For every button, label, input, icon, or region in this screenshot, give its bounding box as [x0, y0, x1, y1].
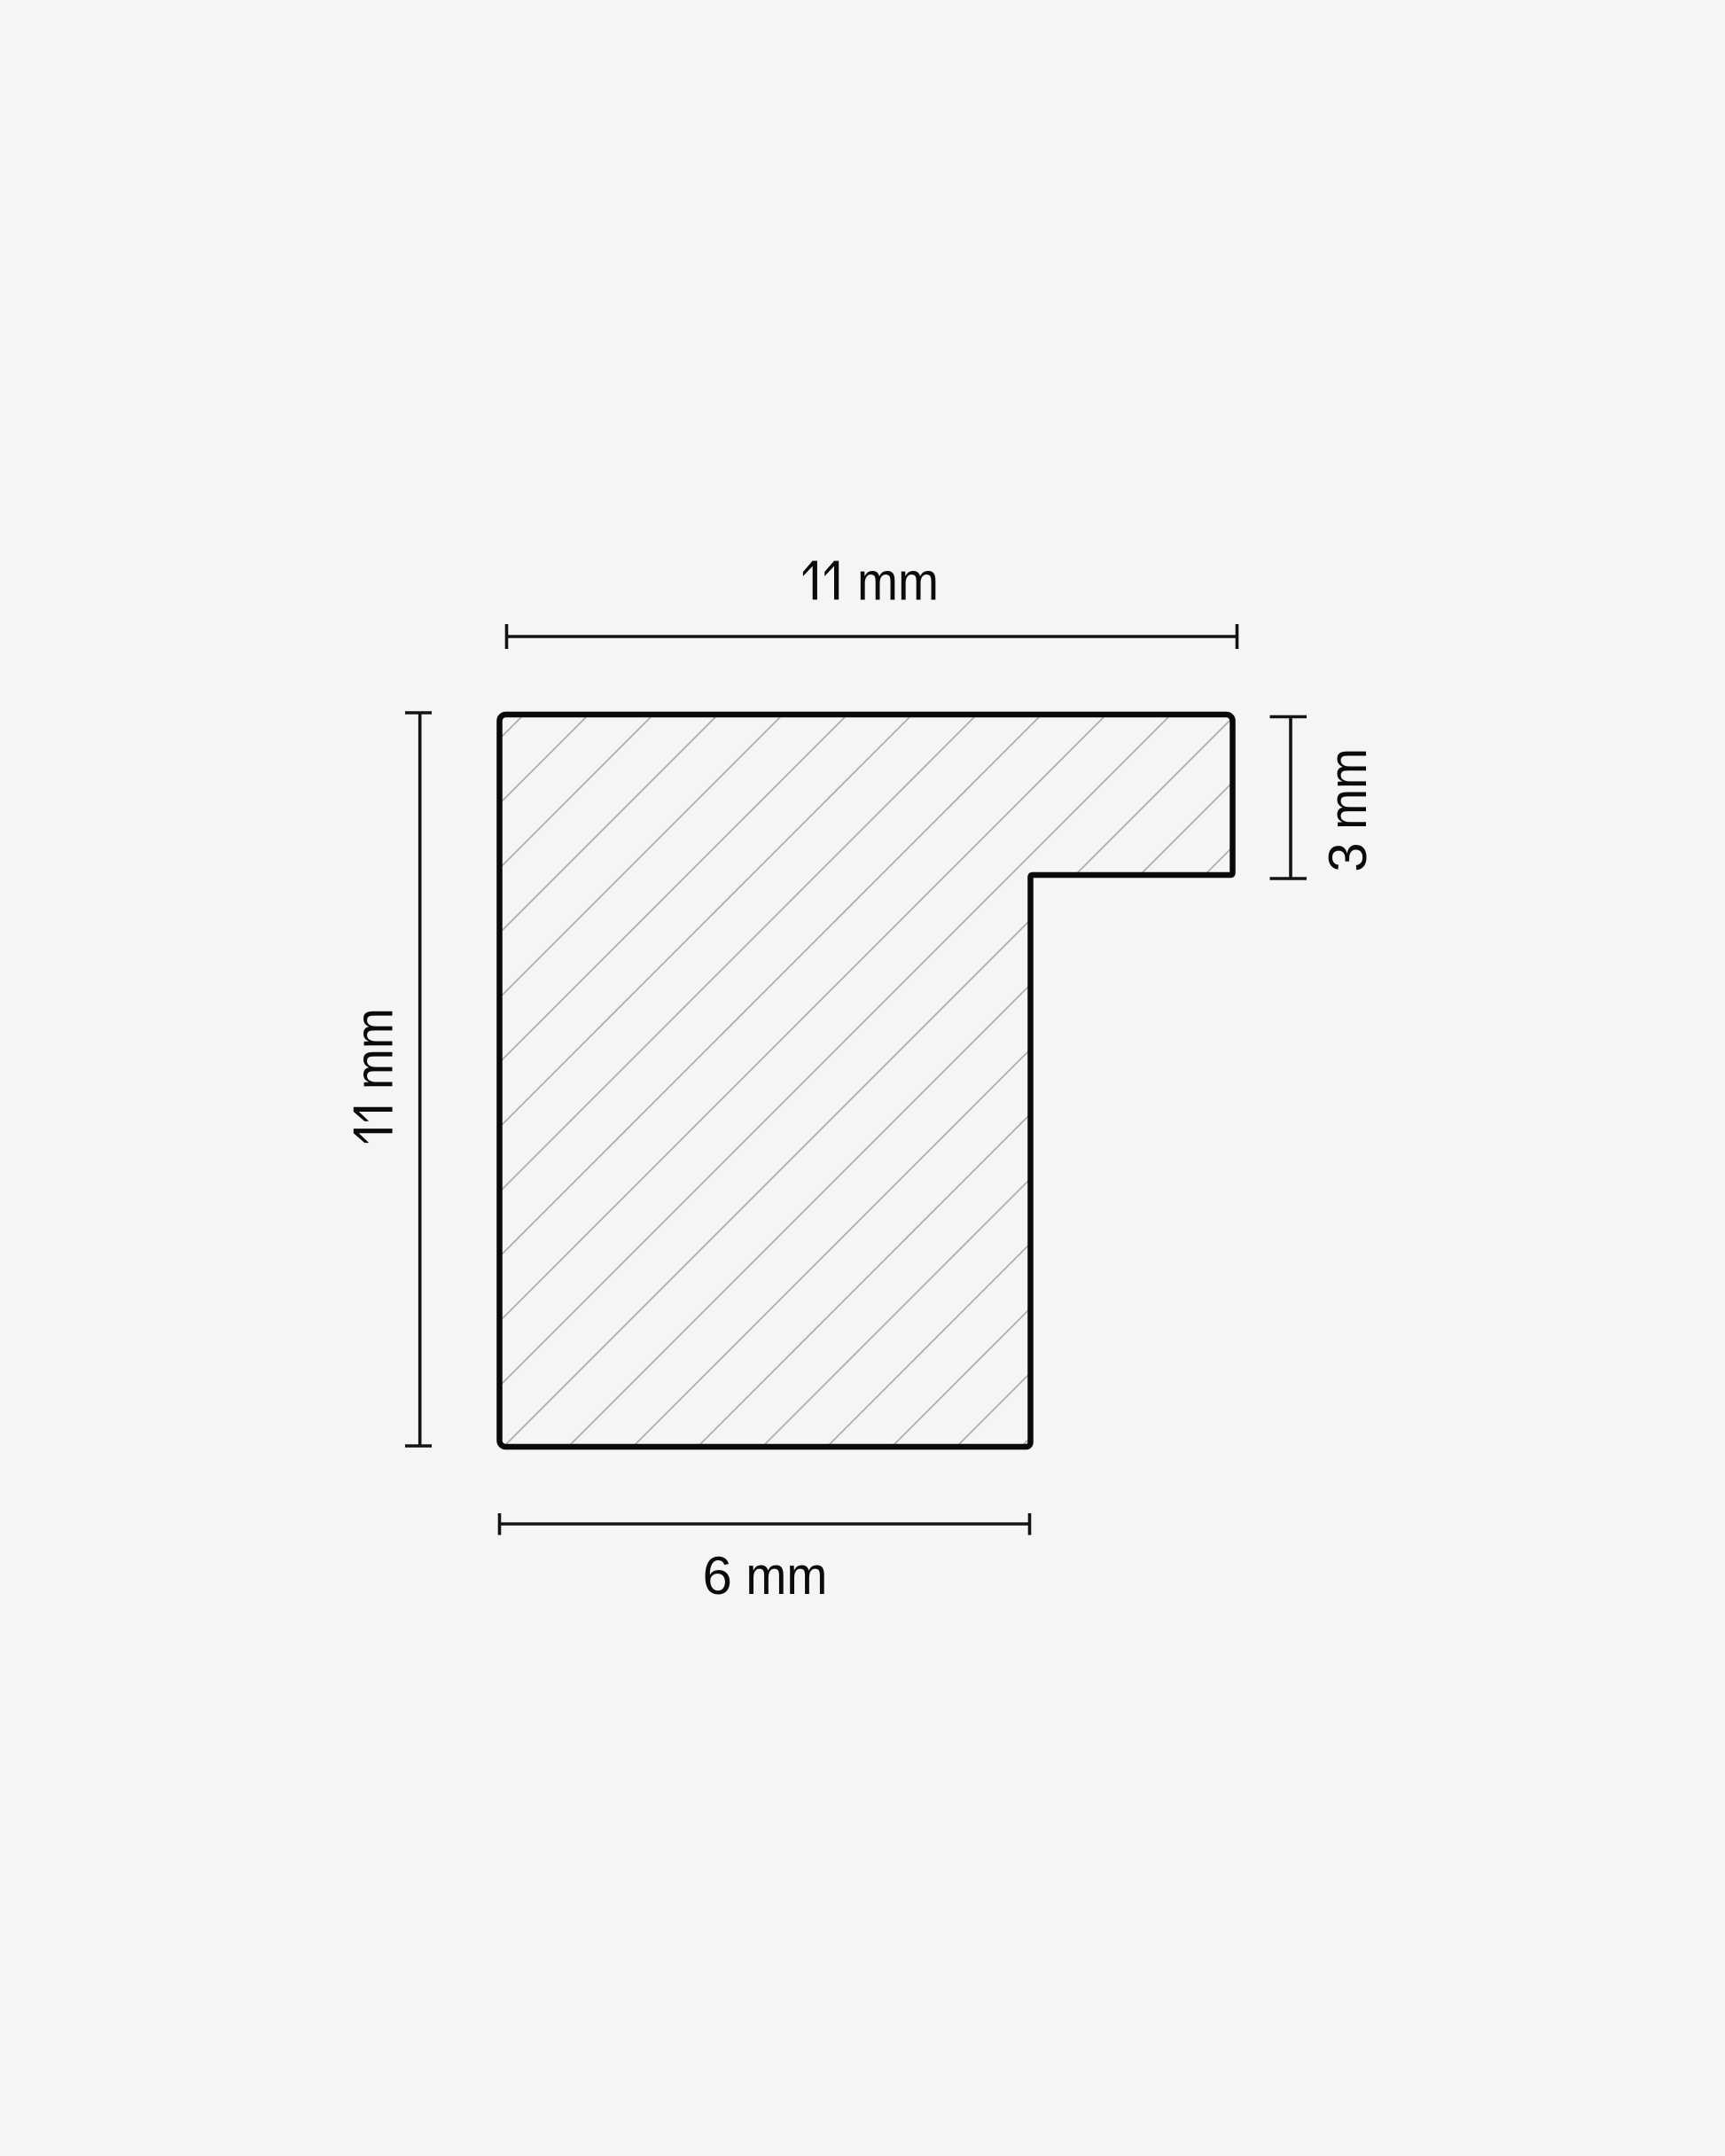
svg-text:6: 6	[703, 1546, 732, 1605]
svg-text:mm: mm	[857, 552, 939, 612]
svg-text:mm: mm	[346, 1008, 405, 1090]
svg-text:mm: mm	[1319, 748, 1378, 830]
svg-text:3: 3	[1318, 842, 1378, 871]
svg-text:mm: mm	[745, 1547, 827, 1606]
